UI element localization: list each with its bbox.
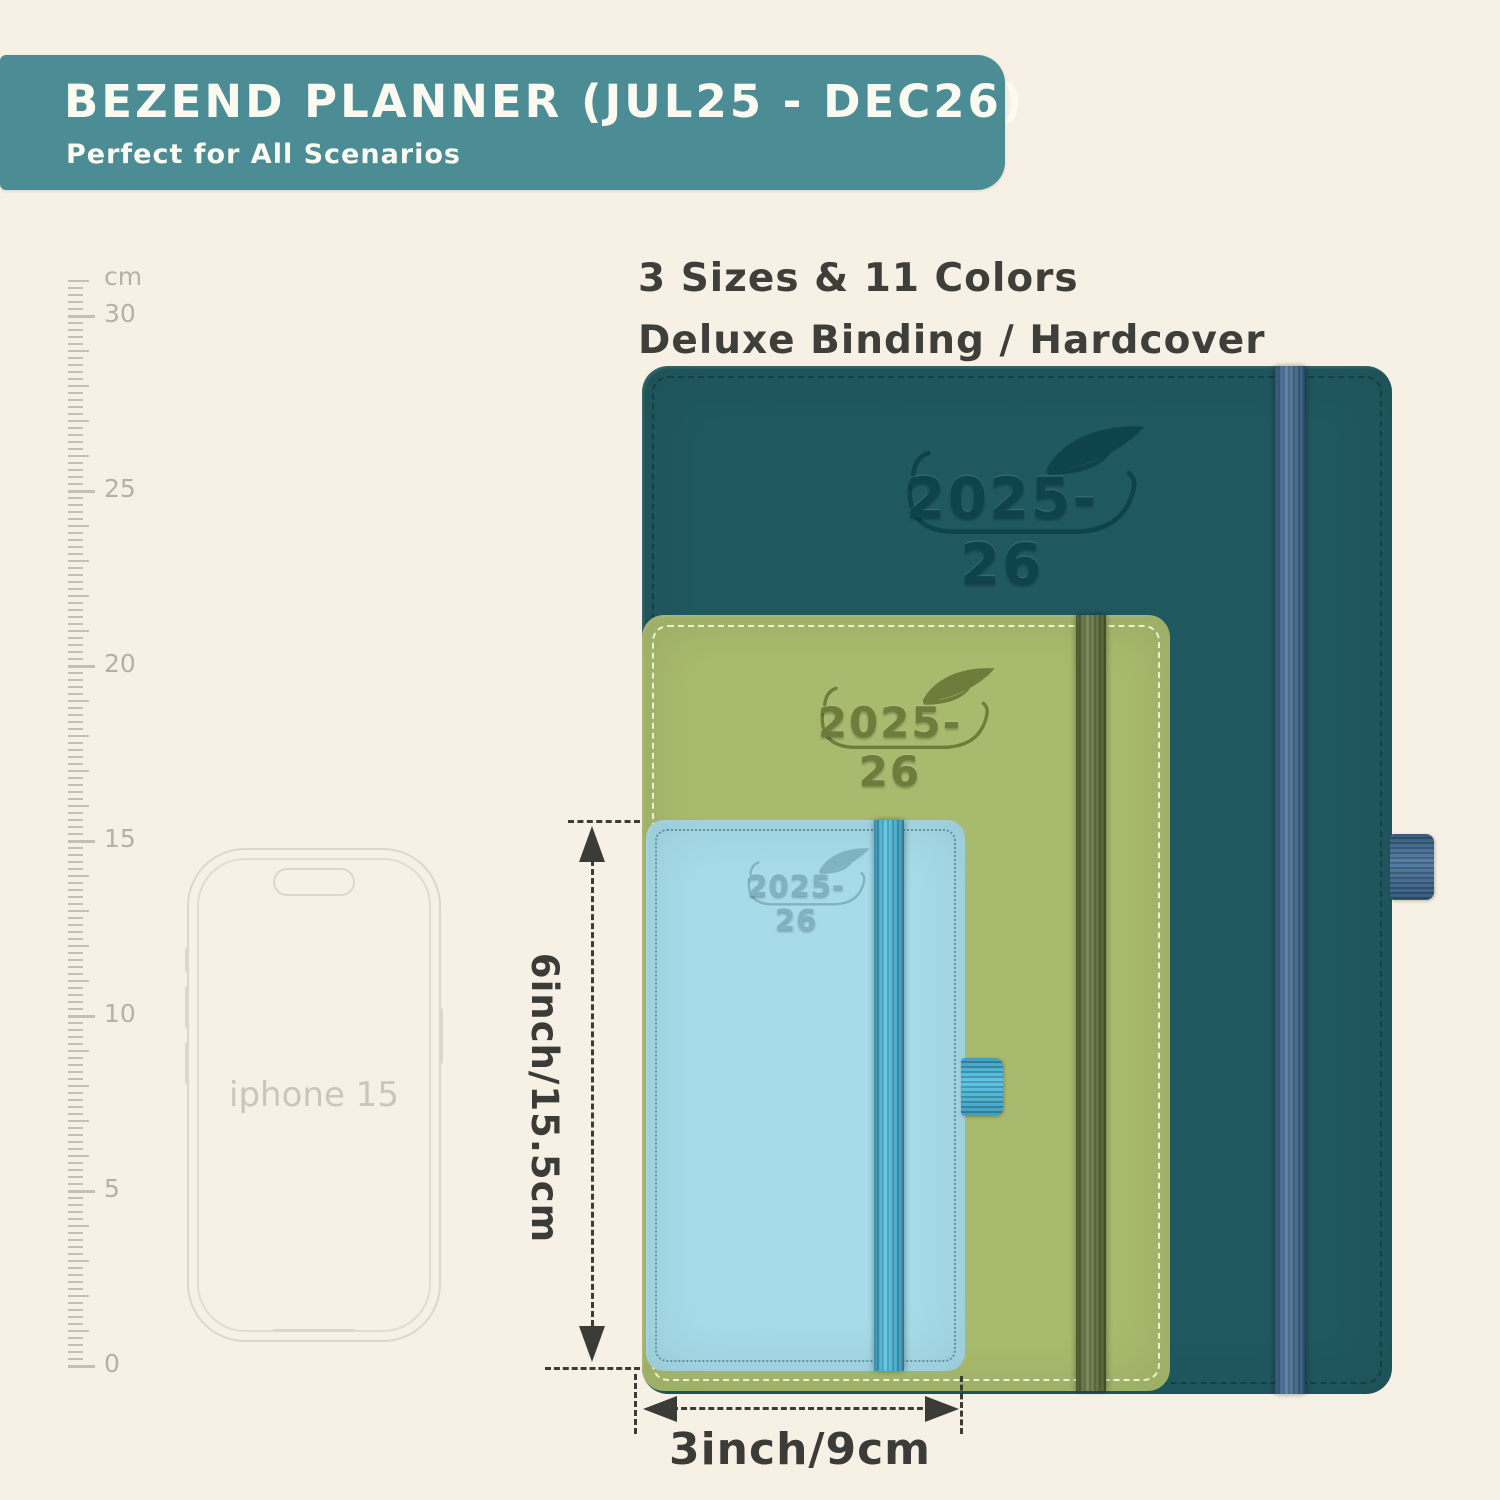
ruler-tick [68,987,83,989]
planner-logo: 2025-26 [804,665,1004,761]
ruler-tick [68,1197,83,1199]
ruler-tick [68,518,83,520]
speaker-line [273,1329,355,1332]
headline-line2: Deluxe Binding / Hardcover [638,310,1266,372]
ruler-tick [68,847,83,849]
ruler-tick [68,378,83,380]
ruler-tick [68,490,95,493]
ruler-tick [68,735,89,737]
ruler-tick [68,1316,83,1318]
headline: 3 Sizes & 11 Colors Deluxe Binding / Har… [638,248,1266,372]
pen-loop [961,1058,1003,1116]
ruler-tick [68,1022,83,1024]
ruler-tick [68,868,83,870]
ruler-tick [68,546,83,548]
ruler-tick [68,497,83,499]
ruler-tick [68,462,83,464]
ruler-tick [68,427,83,429]
ruler-tick [68,805,89,807]
arrow-right-icon [925,1396,959,1422]
ruler-tick [68,917,83,919]
ruler-tick [68,896,83,898]
ruler-tick [68,1127,83,1129]
ruler-label: 20 [104,649,136,678]
ruler-tick [68,924,83,926]
ruler-tick [68,630,89,632]
year-label: 2025-26 [885,466,1119,598]
ruler-tick [68,973,83,975]
ruler-tick [68,1295,89,1297]
ruler-tick [68,1064,83,1066]
elastic-band [874,820,904,1371]
ruler-tick [68,385,89,387]
ruler-tick [68,644,83,646]
ruler-tick [68,504,83,506]
ruler-tick [68,343,83,345]
ruler-tick [68,315,95,318]
power-button [439,1008,443,1064]
ruler-tick [68,539,83,541]
ruler-tick [68,1288,83,1290]
ruler-tick [68,910,89,912]
volume-button [185,1042,189,1084]
ruler-tick [68,476,83,478]
ruler-tick [68,364,83,366]
ruler-tick [68,623,83,625]
ruler-tick [68,1141,83,1143]
ruler-tick [68,1204,83,1206]
ruler-tick [68,406,83,408]
height-extension-top [568,820,640,823]
ruler-tick [68,1057,83,1059]
ruler-tick [68,483,83,485]
banner: BEZEND PLANNER (JUL25 - DEC26) Perfect f… [0,55,1005,190]
ruler-tick [68,1043,83,1045]
ruler-tick [68,1162,83,1164]
ruler-label: 25 [104,474,136,503]
ruler-tick [68,1302,83,1304]
ruler-tick [68,770,89,772]
ruler-tick [68,1183,83,1185]
ruler-tick [68,609,83,611]
ruler-tick [68,1099,83,1101]
ruler-tick [68,679,83,681]
width-extension-right [960,1376,963,1434]
ruler-tick [68,840,95,843]
ruler-label: 10 [104,999,136,1028]
planner-size-comparison-image: BEZEND PLANNER (JUL25 - DEC26) Perfect f… [0,0,1500,1500]
ruler-tick [68,721,83,723]
ruler-tick [68,952,83,954]
ruler-label: 30 [104,299,136,328]
dynamic-island [273,868,355,896]
ruler-tick [68,1267,83,1269]
ruler-tick [68,287,83,289]
ruler-tick [68,616,83,618]
iphone-outline: iphone 15 [187,848,441,1342]
ruler-tick [68,1232,83,1234]
ruler-tick [68,1148,83,1150]
planner-logo: 2025-26 [736,846,876,914]
ruler-tick [68,1253,83,1255]
ruler-tick [68,728,83,730]
planner-logo: 2025-26 [885,422,1157,550]
height-dimension-label: 6inch/15.5cm [514,948,566,1248]
ruler-tick [68,875,89,877]
ruler-tick [68,1190,95,1193]
ruler-tick [68,399,83,401]
ruler-tick [68,336,83,338]
ruler-tick [68,882,83,884]
ruler-tick [68,1246,83,1248]
ruler-tick [68,1113,83,1115]
ruler-tick [68,525,89,527]
ruler-label: 0 [104,1349,120,1378]
ruler-tick [68,714,83,716]
ruler-tick [68,413,83,415]
ruler-tick [68,1351,83,1353]
iphone-label: iphone 15 [189,1075,439,1115]
ruler-tick [68,392,83,394]
ruler-tick [68,1274,83,1276]
ruler-tick [68,686,83,688]
ruler-tick [68,448,83,450]
ruler-tick [68,959,83,961]
ruler-tick [68,1085,89,1087]
elastic-band [1076,615,1106,1391]
ruler-tick [68,1323,83,1325]
ruler-tick [68,1029,83,1031]
ruler-tick [68,854,83,856]
ruler-tick [68,742,83,744]
arrow-down-icon [579,1326,605,1362]
ruler-tick [68,791,83,793]
ruler-tick [68,371,83,373]
ruler-tick [68,1001,83,1003]
height-extension-bottom [545,1367,640,1370]
ruler-tick [68,434,83,436]
ruler-tick [68,469,83,471]
ruler-unit-label: cm [104,262,142,291]
ruler-tick [68,1176,83,1178]
ruler-tick [68,1092,83,1094]
ruler-tick [68,700,89,702]
ruler-tick [68,693,83,695]
ruler-tick [68,980,89,982]
ruler-tick [68,301,83,303]
ruler-tick [68,1120,89,1122]
ruler-tick [68,511,83,513]
ruler-tick [68,966,83,968]
ruler-tick [68,1078,83,1080]
ruler-tick [68,1155,89,1157]
ruler-tick [68,455,89,457]
ruler-tick [68,812,83,814]
banner-subtitle: Perfect for All Scenarios [66,139,461,170]
ruler-tick [68,637,83,639]
ruler-tick [68,357,83,359]
ruler-tick [68,1071,83,1073]
planner-small: 2025-26 [646,820,965,1371]
ruler-tick [68,658,83,660]
ruler-tick [68,280,89,282]
ruler-tick [68,350,89,352]
ruler-tick [68,329,83,331]
ruler-tick [68,756,83,758]
arrow-up-icon [579,826,605,862]
ruler-tick [68,672,83,674]
ruler-label: 15 [104,824,136,853]
ruler-tick [68,1309,83,1311]
ruler-tick [68,861,83,863]
ruler-tick [68,553,83,555]
ruler-tick [68,833,83,835]
ruler-tick [68,826,83,828]
ruler-tick [68,798,83,800]
ruler-tick [68,931,83,933]
ruler-tick [68,707,83,709]
ruler-tick [68,1218,83,1220]
width-dimension-line [672,1407,932,1410]
year-label: 2025-26 [736,869,856,937]
width-dimension-label: 3inch/9cm [640,1424,960,1475]
ruler-tick [68,1344,83,1346]
ruler-tick [68,1015,95,1018]
ruler-tick [68,1036,83,1038]
ruler-tick [68,308,83,310]
ruler-tick [68,322,83,324]
ruler-tick [68,784,83,786]
ruler-label: 5 [104,1174,120,1203]
ruler-tick [68,889,83,891]
ruler-tick [68,1169,83,1171]
ruler-tick [68,1260,89,1262]
ruler-tick [68,602,83,604]
ruler-tick [68,567,83,569]
ruler-tick [68,1211,83,1213]
ruler-tick [68,1239,83,1241]
ruler-tick [68,1008,83,1010]
pen-loop [1390,834,1434,900]
banner-title: BEZEND PLANNER (JUL25 - DEC26) [64,75,1025,128]
width-extension-left [634,1374,637,1434]
ruler-tick [68,1106,83,1108]
ruler-tick [68,819,83,821]
ruler-tick [68,1358,83,1360]
ruler-tick [68,532,83,534]
ruler-tick [68,595,89,597]
ruler-tick [68,763,83,765]
headline-line1: 3 Sizes & 11 Colors [638,248,1266,310]
arrow-left-icon [643,1396,677,1422]
ruler-tick [68,1337,83,1339]
year-label: 2025-26 [804,698,976,796]
ruler-tick [68,994,83,996]
volume-button [185,986,189,1028]
ruler-tick [68,574,83,576]
volume-button [185,948,189,972]
height-dimension-line [591,860,594,1335]
ruler-tick [68,294,83,296]
ruler-tick [68,581,83,583]
ruler-tick [68,1281,83,1283]
ruler-tick [68,1134,83,1136]
ruler-tick [68,560,89,562]
ruler-tick [68,665,95,668]
ruler-tick [68,777,83,779]
ruler-tick [68,945,89,947]
ruler-tick [68,1050,89,1052]
ruler-tick [68,441,83,443]
ruler-tick [68,903,83,905]
ruler-tick [68,749,83,751]
ruler-tick [68,1365,95,1368]
ruler-tick [68,1330,89,1332]
elastic-band [1275,366,1305,1394]
ruler-tick [68,420,89,422]
ruler-tick [68,1225,89,1227]
ruler-tick [68,938,83,940]
ruler-tick [68,588,83,590]
ruler-tick [68,651,83,653]
